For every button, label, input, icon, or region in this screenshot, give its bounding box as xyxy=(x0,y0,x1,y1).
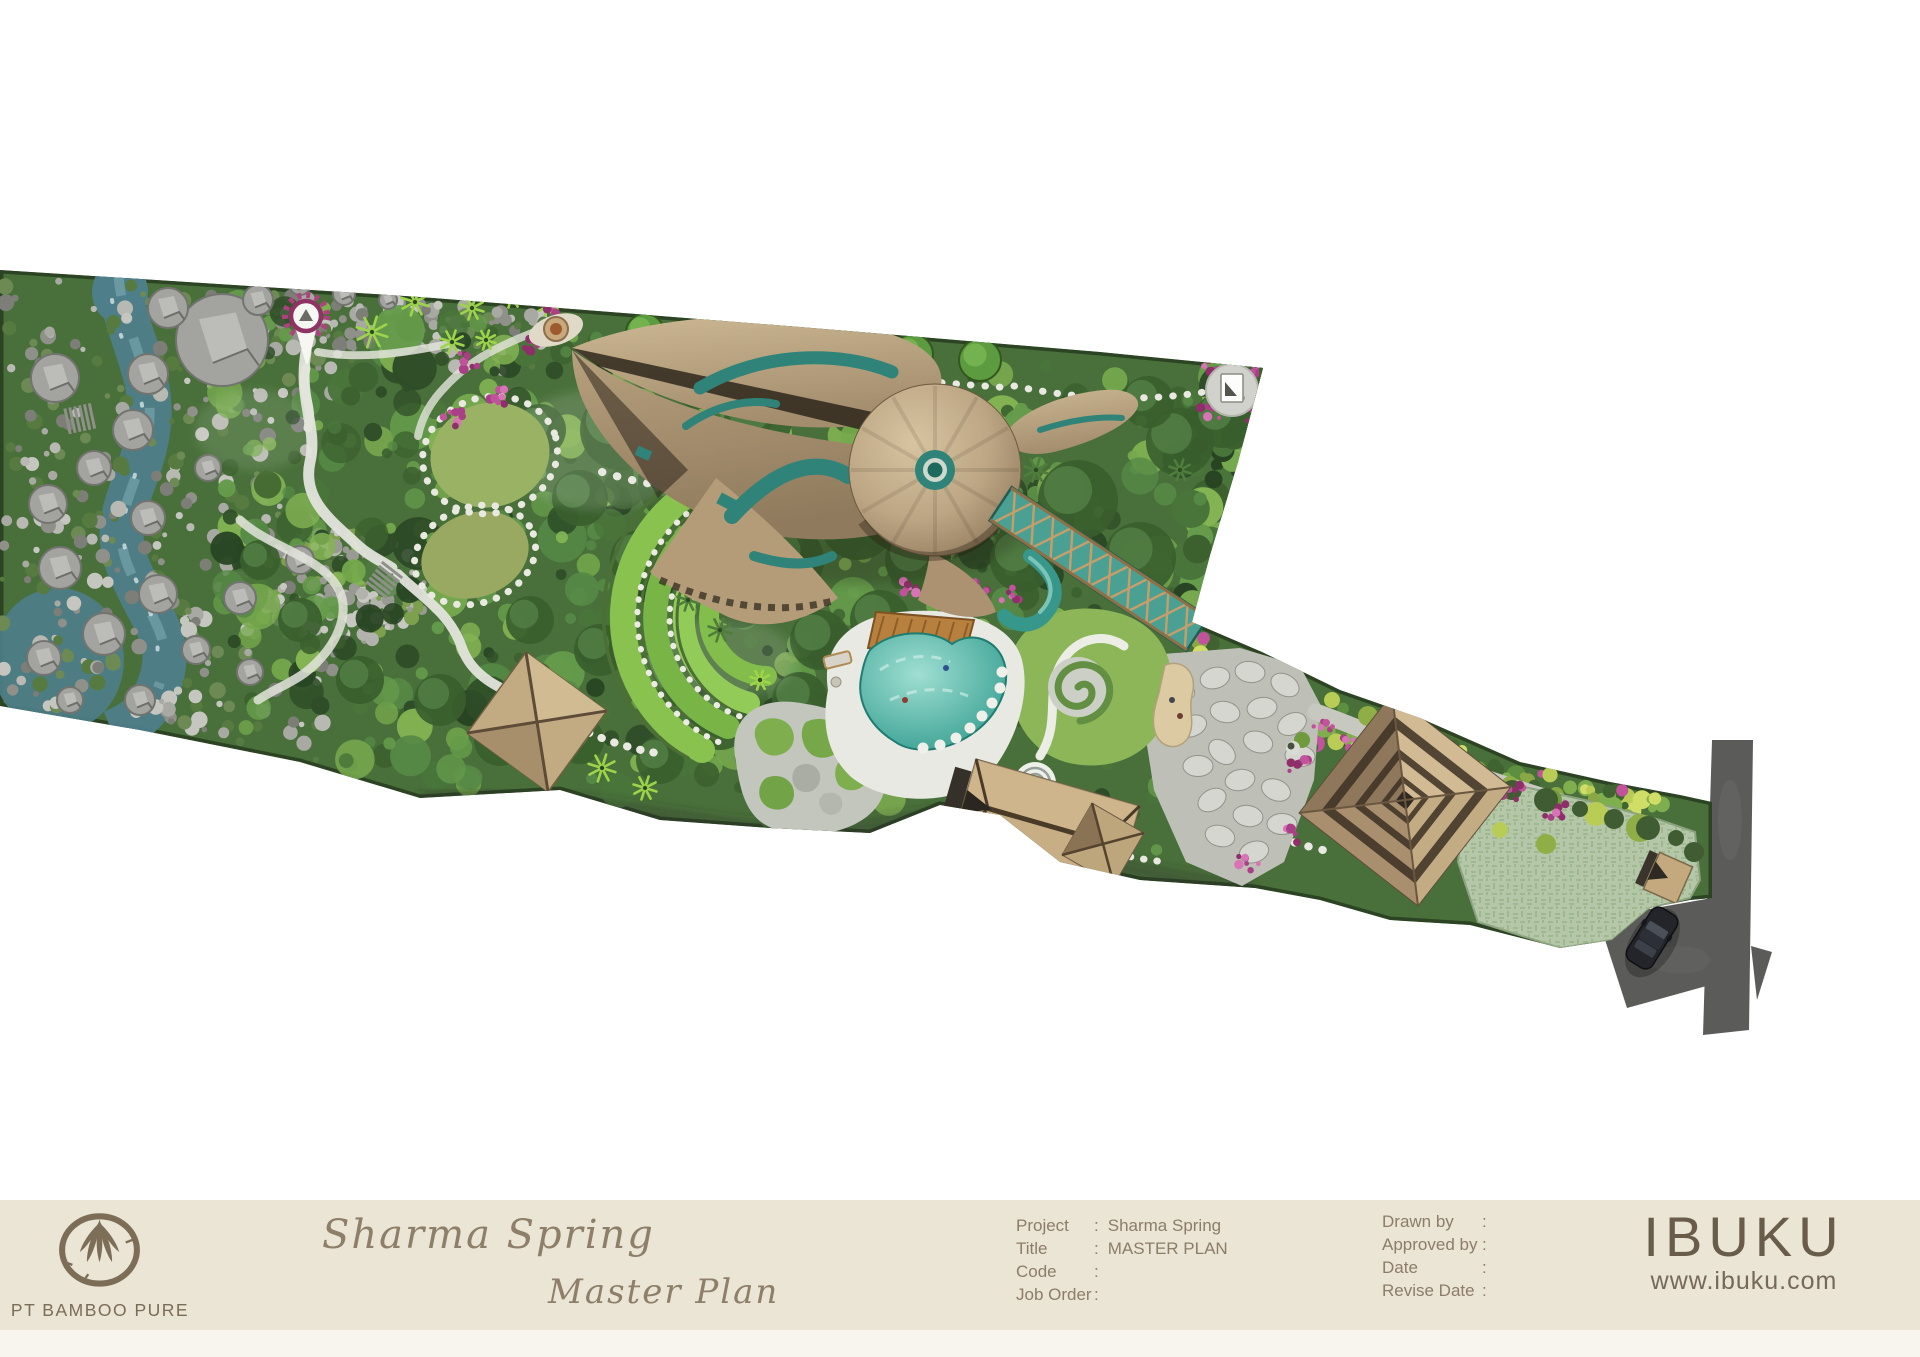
info-row-title: Title:MASTER PLAN xyxy=(1016,1237,1228,1260)
drawing-sheet: PT BAMBOO PURE Sharma Spring Master Plan… xyxy=(0,0,1920,1357)
sheet-script-title: Master Plan xyxy=(548,1272,779,1312)
approval-info-block: Drawn by: Approved by: Date: Revise Date… xyxy=(1382,1210,1496,1302)
info-row-joborder: Job Order: xyxy=(1016,1283,1228,1306)
brand-block: IBUKU www.ibuku.com xyxy=(1628,1208,1860,1296)
road-flare xyxy=(1751,946,1772,1000)
info-row-revisedate: Revise Date: xyxy=(1382,1279,1496,1302)
site-note-marker xyxy=(1206,364,1258,416)
project-script-title: Sharma Spring xyxy=(322,1212,655,1258)
info-row-date: Date: xyxy=(1382,1256,1496,1279)
project-info-block: Project:Sharma Spring Title:MASTER PLAN … xyxy=(1016,1214,1228,1306)
info-row-approvedby: Approved by: xyxy=(1382,1233,1496,1256)
info-row-project: Project:Sharma Spring xyxy=(1016,1214,1228,1237)
site-plan-rendering xyxy=(0,0,1920,1357)
site-area xyxy=(0,260,1712,948)
sheet-lower-strip xyxy=(0,1330,1920,1357)
brand-logo-text: IBUKU xyxy=(1628,1208,1860,1266)
info-row-drawnby: Drawn by: xyxy=(1382,1210,1496,1233)
info-row-code: Code: xyxy=(1016,1260,1228,1283)
brand-website: www.ibuku.com xyxy=(1628,1267,1860,1296)
company-name: PT BAMBOO PURE xyxy=(8,1300,192,1321)
bamboo-logo-icon xyxy=(51,1206,148,1292)
